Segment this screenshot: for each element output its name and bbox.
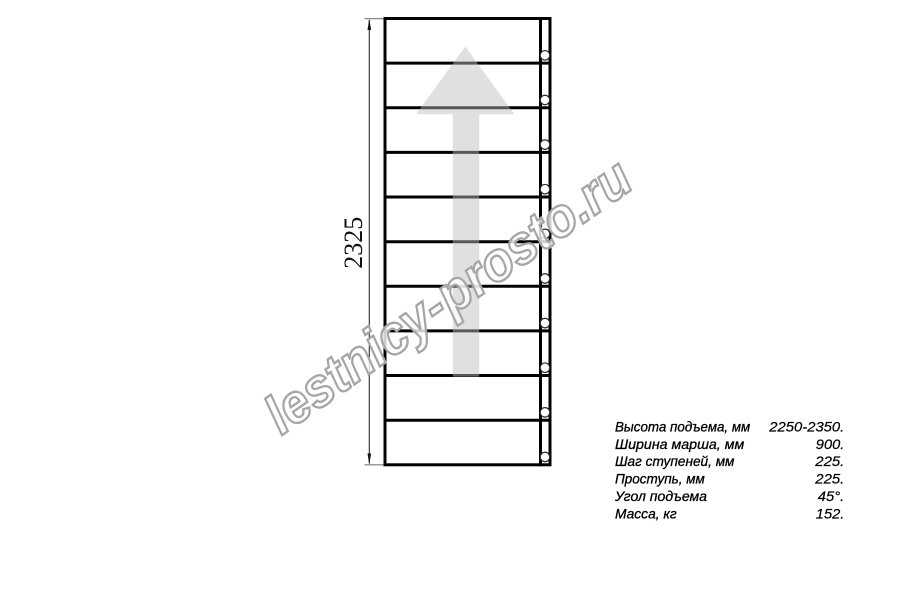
svg-text:2325: 2325 — [339, 217, 368, 269]
svg-text:Угол подъема: Угол подъема — [614, 489, 707, 504]
svg-text:Шаг ступеней, мм: Шаг ступеней, мм — [615, 454, 735, 469]
svg-text:225.: 225. — [814, 472, 844, 487]
svg-text:Ширина марша, мм: Ширина марша, мм — [615, 437, 745, 452]
svg-text:45°.: 45°. — [818, 489, 845, 504]
svg-text:152.: 152. — [816, 506, 845, 521]
svg-text:2250-2350.: 2250-2350. — [768, 419, 844, 434]
svg-text:225.: 225. — [814, 454, 844, 469]
svg-text:Проступь, мм: Проступь, мм — [615, 472, 705, 487]
svg-text:Высота подъема, мм: Высота подъема, мм — [615, 419, 751, 434]
svg-text:Масса, кг: Масса, кг — [615, 506, 677, 521]
svg-text:900.: 900. — [816, 437, 845, 452]
